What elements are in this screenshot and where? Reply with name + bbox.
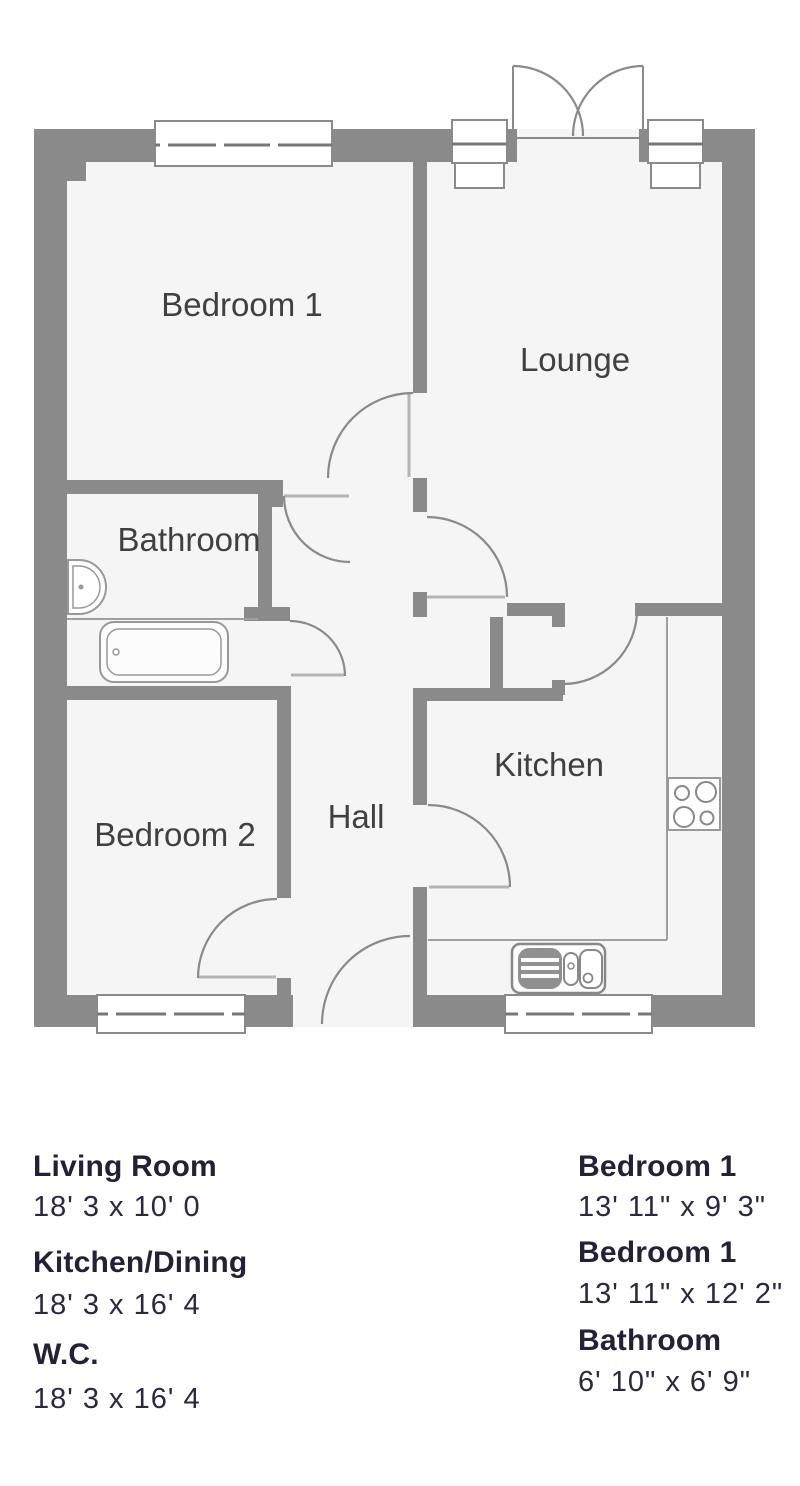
wall-stub [413, 478, 427, 512]
legend-item: Bedroom 1 [578, 1238, 737, 1268]
room-label-hall: Hall [328, 798, 385, 835]
window [97, 995, 245, 1033]
wall-lounge-kitchen [635, 603, 722, 616]
legend-room-dims: 6' 10" x 6' 9" [578, 1368, 751, 1397]
legend-room-name: Bathroom [578, 1326, 721, 1356]
legend-item: Bathroom [578, 1326, 721, 1356]
room-label-bedroom2: Bedroom 2 [94, 816, 255, 853]
wall-jamb [277, 978, 291, 995]
wall-cupboard [490, 617, 503, 688]
legend-room-dims: 18' 3 x 16' 4 [33, 1291, 201, 1320]
wall-hall-kitchen-lower [413, 688, 563, 701]
legend-room-name: Bedroom 1 [578, 1238, 737, 1268]
legend-item: Bedroom 1 [578, 1152, 737, 1182]
wall-step-notch [67, 162, 86, 181]
patio-door-leaves [513, 66, 643, 136]
legend-room-dims: 13' 11" x 12' 2" [578, 1280, 783, 1309]
wall-stub [413, 592, 427, 617]
floorplan-page: Bedroom 1 Lounge Bathroom Bedroom 2 Hall… [0, 0, 800, 1486]
wall-hall-kitchen [413, 701, 427, 805]
legend-item: Living Room [33, 1152, 217, 1182]
window [648, 120, 703, 188]
room-label-bedroom1: Bedroom 1 [161, 286, 322, 323]
wall-bedroom2-hall [277, 700, 291, 898]
legend-room-dims: 18' 3 x 10' 0 [33, 1193, 201, 1222]
bathtub-icon [100, 622, 228, 682]
patio-door-swing [513, 66, 583, 136]
window [505, 995, 652, 1033]
floorplan-drawing: Bedroom 1 Lounge Bathroom Bedroom 2 Hall… [0, 0, 800, 1120]
legend-item-dims: 13' 11" x 12' 2" [578, 1280, 783, 1309]
legend-item: Kitchen/Dining [33, 1248, 247, 1278]
window [452, 120, 507, 188]
legend-item-dims: 18' 3 x 16' 4 [33, 1291, 201, 1320]
legend-room-name: Bedroom 1 [578, 1152, 737, 1182]
entrance-opening [293, 995, 413, 1027]
legend-item-dims: 13' 11" x 9' 3" [578, 1193, 766, 1222]
legend-item-dims: 6' 10" x 6' 9" [578, 1368, 751, 1397]
wall-door-jamb [552, 680, 565, 695]
legend-item-dims: 18' 3 x 10' 0 [33, 1193, 201, 1222]
patio-door-opening [517, 129, 639, 162]
hob-icon [668, 778, 720, 830]
wall-hall-kitchen [413, 887, 427, 995]
legend-room-dims: 13' 11" x 9' 3" [578, 1193, 766, 1222]
wall-bedroom1-bathroom [67, 480, 283, 494]
legend-room-name: Living Room [33, 1152, 217, 1182]
legend-item: W.C. [33, 1340, 99, 1370]
window [155, 121, 332, 166]
wall-bedroom1-lounge [413, 162, 427, 393]
sink-icon [512, 944, 605, 993]
room-label-kitchen: Kitchen [494, 746, 604, 783]
legend-item-dims: 18' 3 x 16' 4 [33, 1385, 201, 1414]
legend-room-name: Kitchen/Dining [33, 1248, 247, 1278]
room-label-bathroom: Bathroom [117, 521, 260, 558]
wall-door-jamb [552, 603, 565, 627]
wall-bathroom-bedroom2 [67, 686, 291, 700]
patio-door-swing [573, 66, 643, 136]
legend-room-dims: 18' 3 x 16' 4 [33, 1385, 201, 1414]
legend-room-name: W.C. [33, 1340, 99, 1370]
room-label-lounge: Lounge [520, 341, 630, 378]
